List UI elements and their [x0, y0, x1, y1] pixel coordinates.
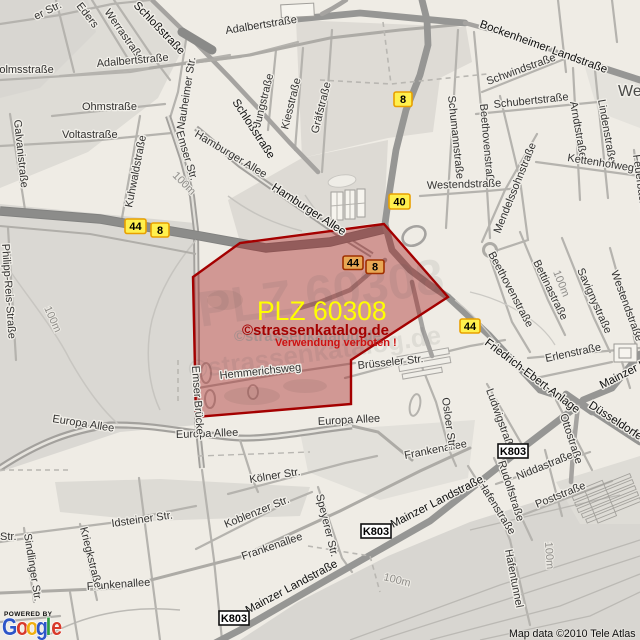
svg-text:K803: K803 — [363, 526, 389, 538]
svg-text:Solmsstraße: Solmsstraße — [0, 64, 54, 76]
svg-text:44: 44 — [129, 221, 142, 233]
svg-text:Ohmstraße: Ohmstraße — [82, 101, 137, 113]
svg-text:Map data ©2010 Tele Atlas: Map data ©2010 Tele Atlas — [509, 628, 636, 640]
svg-text:Europa Allee: Europa Allee — [176, 427, 239, 441]
svg-text:l: l — [46, 613, 51, 640]
svg-text:40: 40 — [393, 197, 405, 209]
svg-text:G: G — [2, 613, 17, 640]
svg-text:100m: 100m — [542, 541, 556, 569]
svg-text:8: 8 — [400, 94, 406, 106]
svg-text:8: 8 — [372, 262, 378, 274]
svg-text:Verwendung verboten !: Verwendung verboten ! — [275, 337, 397, 349]
svg-text:e: e — [51, 613, 62, 640]
svg-text:44: 44 — [464, 321, 477, 333]
svg-text:Str.: Str. — [0, 531, 17, 543]
svg-text:8: 8 — [157, 225, 163, 237]
svg-text:K803: K803 — [500, 446, 526, 458]
svg-text:Westend: Westend — [618, 83, 640, 100]
svg-text:K803: K803 — [221, 613, 247, 625]
svg-text:44: 44 — [347, 258, 360, 270]
svg-text:Voltastraße: Voltastraße — [62, 129, 118, 141]
